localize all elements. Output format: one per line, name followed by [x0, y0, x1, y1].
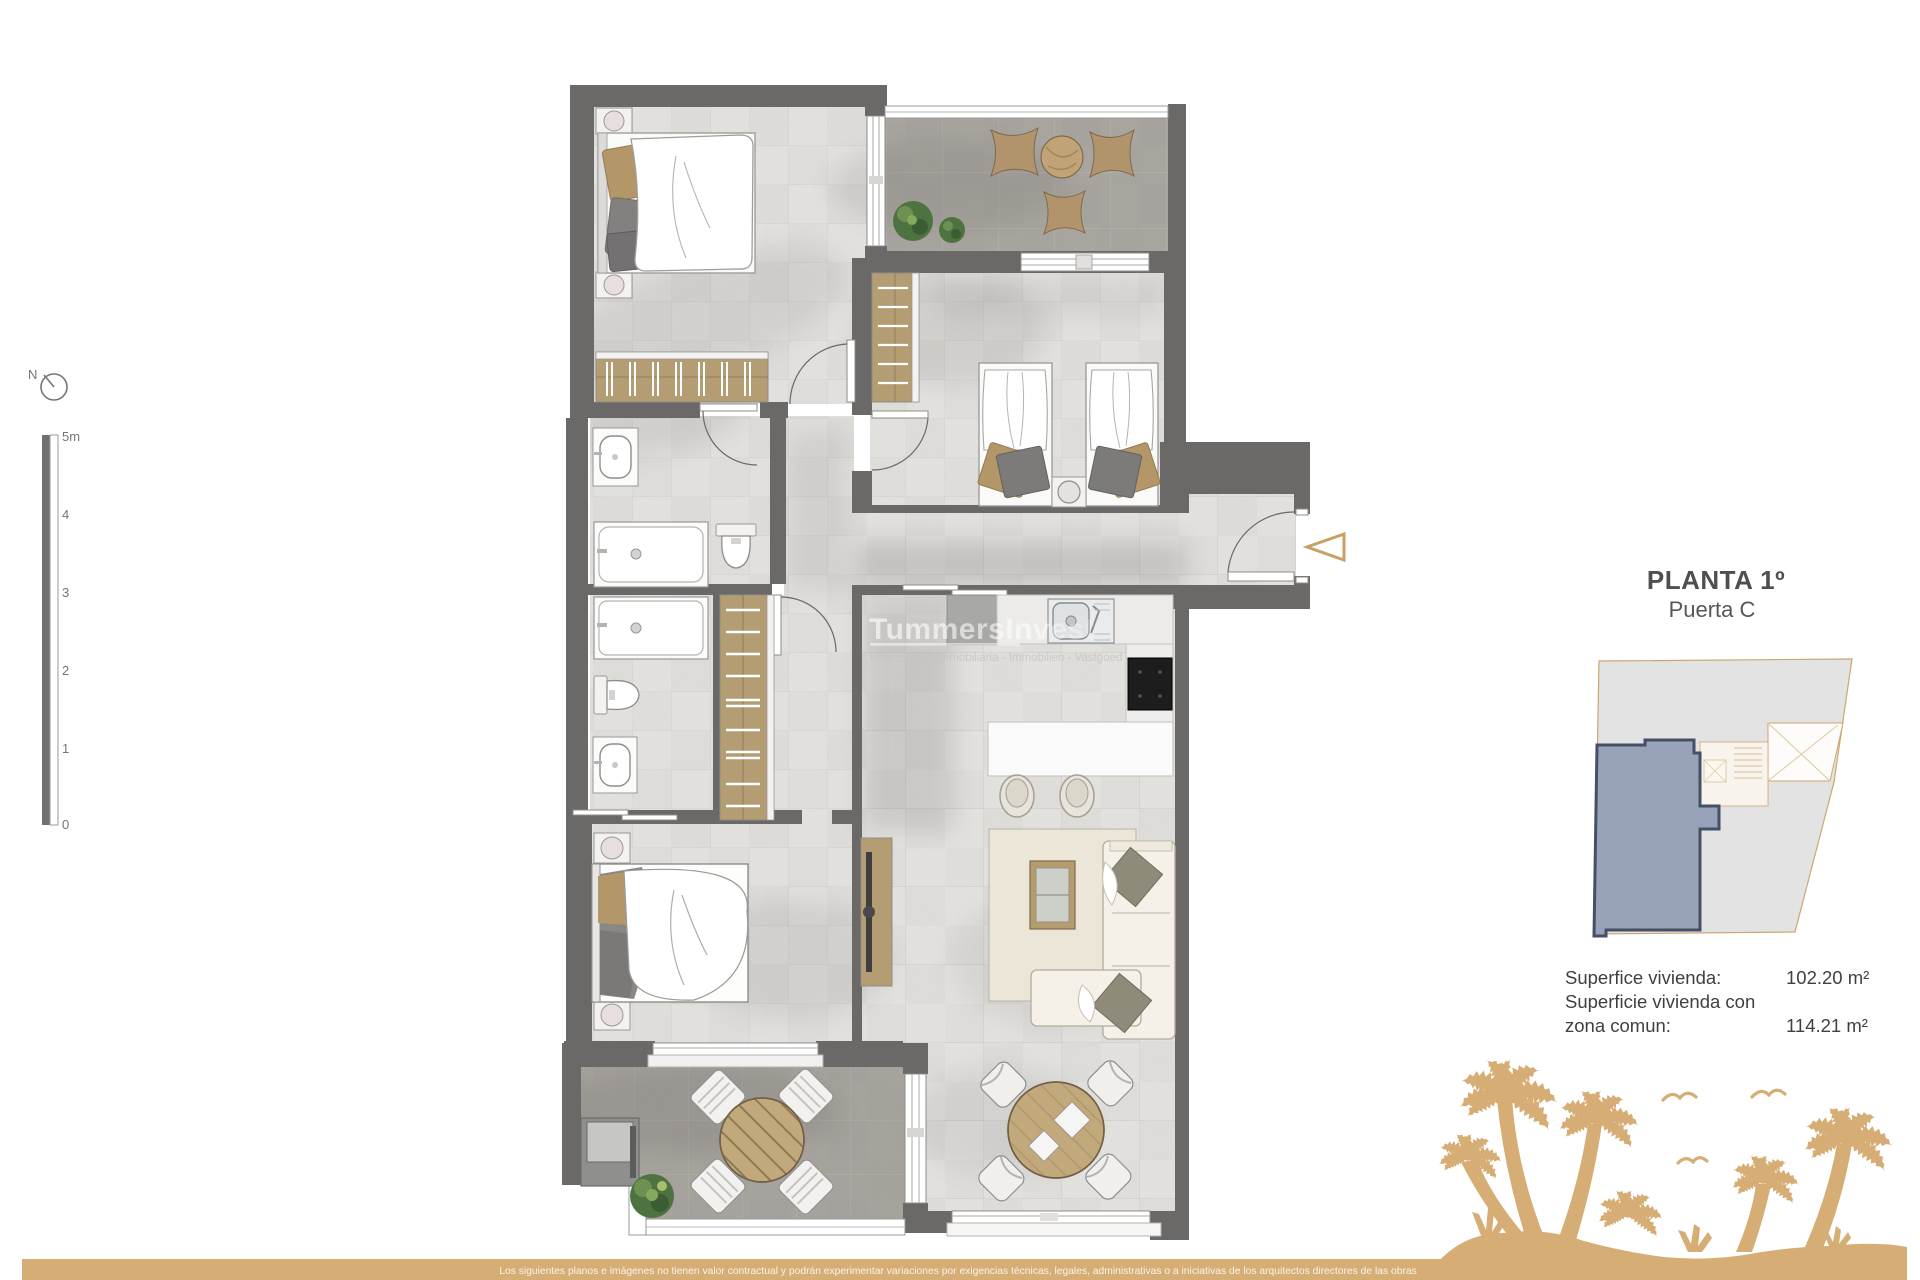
svg-text:Los siguientes planos e imágen: Los siguientes planos e imágenes no tien…	[499, 1266, 1417, 1277]
svg-text:114.21 m²: 114.21 m²	[1786, 1015, 1868, 1036]
svg-text:zona comun:: zona comun:	[1565, 1015, 1671, 1036]
svg-text:5m: 5m	[62, 429, 80, 444]
svg-text:N: N	[28, 367, 37, 382]
svg-text:2: 2	[62, 663, 69, 678]
svg-text:Puerta C: Puerta C	[1669, 597, 1756, 622]
svg-text:Real Estate - Inmobiliaria - I: Real Estate - Inmobiliaria - Immobilien …	[870, 652, 1122, 664]
svg-text:1: 1	[62, 741, 69, 756]
svg-text:102.20 m²: 102.20 m²	[1786, 967, 1869, 988]
svg-text:Superfice vivienda:: Superfice vivienda:	[1565, 967, 1721, 988]
svg-text:Superficie vivienda con: Superficie vivienda con	[1565, 991, 1755, 1012]
svg-text:TummersInvest: TummersInvest	[869, 613, 1095, 646]
svg-text:0: 0	[62, 817, 69, 832]
svg-text:4: 4	[62, 507, 69, 522]
svg-text:3: 3	[62, 585, 69, 600]
svg-text:PLANTA 1º: PLANTA 1º	[1647, 565, 1785, 595]
